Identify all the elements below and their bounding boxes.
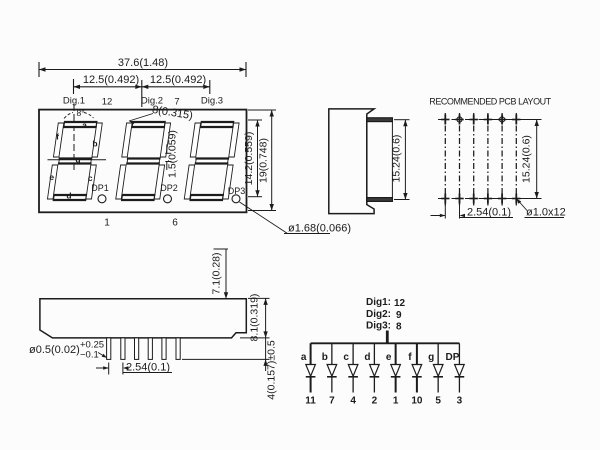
svg-text:14.2(0.559): 14.2(0.559) [243,132,255,186]
svg-text:f: f [56,132,59,142]
svg-text:a: a [82,120,87,130]
svg-text:RECOMMENDED PCB LAYOUT: RECOMMENDED PCB LAYOUT [429,97,551,107]
svg-text:12.5(0.492): 12.5(0.492) [83,74,139,86]
svg-text:a: a [301,352,307,363]
svg-text:g: g [75,155,80,165]
svg-text:3: 3 [457,396,463,407]
svg-text:e: e [49,172,54,182]
svg-text:c: c [343,352,349,363]
svg-text:19(0.748): 19(0.748) [258,138,270,183]
svg-text:b: b [92,139,97,149]
svg-text:15.24(0.6): 15.24(0.6) [521,135,533,183]
svg-text:7: 7 [174,97,179,108]
svg-text:10: 10 [411,396,423,407]
svg-text:12.5(0.492): 12.5(0.492) [150,74,206,86]
svg-text:Dig2:: Dig2: [366,309,391,320]
svg-text:2.54(0.1): 2.54(0.1) [467,207,511,219]
svg-text:b: b [322,352,328,363]
svg-text:7.1(0.28): 7.1(0.28) [211,252,223,294]
svg-text:1: 1 [393,396,399,407]
svg-text:2: 2 [372,396,378,407]
svg-text:d: d [364,352,370,363]
svg-text:DP: DP [446,352,460,363]
svg-text:Dig.3: Dig.3 [201,96,223,107]
svg-text:g: g [428,352,434,363]
svg-text:DP1: DP1 [91,183,109,193]
svg-text:37.6(1.48): 37.6(1.48) [118,57,168,69]
svg-text:8.1(0.319): 8.1(0.319) [249,294,261,342]
svg-text:Dig1:: Dig1: [366,297,391,308]
svg-text:5: 5 [435,396,441,407]
svg-text:8°: 8° [77,108,85,118]
svg-text:DP2: DP2 [160,183,178,193]
svg-text:11: 11 [305,396,316,407]
svg-text:−0.1: −0.1 [80,350,99,361]
svg-text:ø1.68(0.066): ø1.68(0.066) [288,223,351,235]
svg-text:d: d [66,191,71,201]
svg-text:4: 4 [350,396,356,407]
svg-text:6: 6 [172,218,178,229]
svg-text:e: e [386,352,392,363]
svg-text:12: 12 [394,298,406,309]
svg-text:7: 7 [329,396,335,407]
svg-text:1.5(0.059): 1.5(0.059) [167,130,179,178]
svg-text:2.54(0.1): 2.54(0.1) [126,361,170,373]
svg-text:c: c [88,173,93,183]
svg-text:12: 12 [102,97,113,108]
svg-text:4(0.157)±0.5: 4(0.157)±0.5 [266,340,278,400]
svg-text:ø1.0x12: ø1.0x12 [526,207,566,219]
svg-text:9: 9 [396,310,402,321]
svg-text:15.24(0.6): 15.24(0.6) [391,135,403,183]
svg-text:ø0.5(0.02): ø0.5(0.02) [29,344,80,356]
svg-text:Dig3:: Dig3: [366,321,391,332]
svg-text:1: 1 [104,218,110,229]
svg-text:8: 8 [396,322,402,333]
